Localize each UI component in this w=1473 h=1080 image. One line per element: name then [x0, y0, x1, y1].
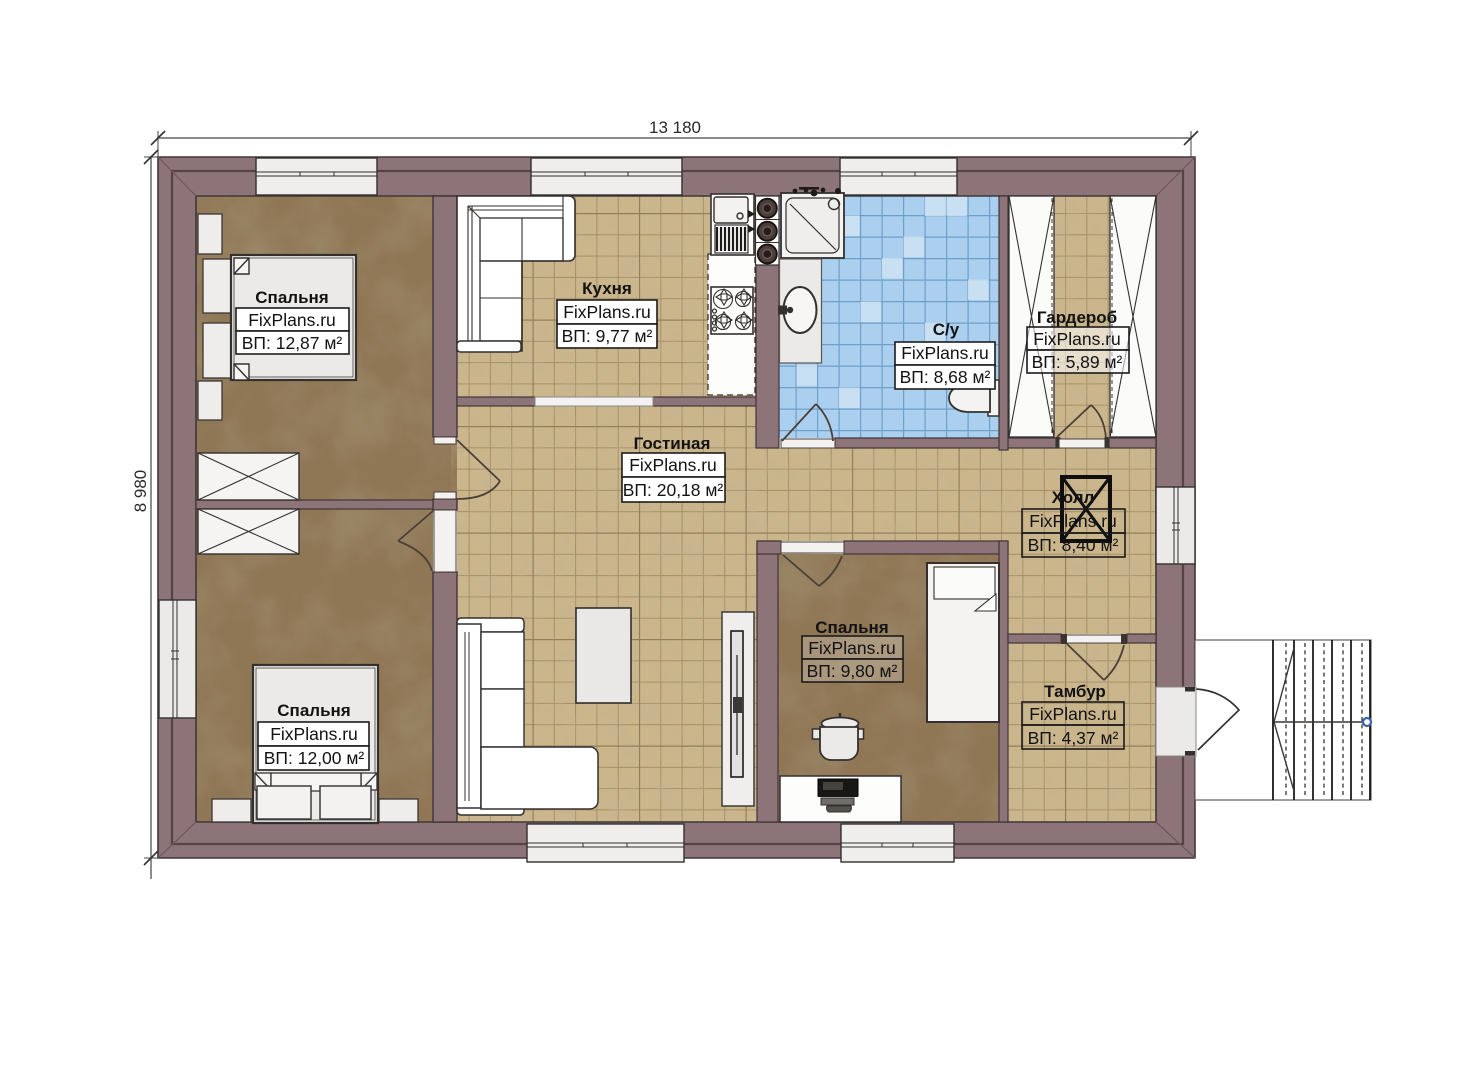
svg-text:FixPlans.ru: FixPlans.ru — [901, 343, 989, 363]
svg-text:Гардероб: Гардероб — [1037, 308, 1117, 327]
svg-text:FixPlans.ru: FixPlans.ru — [270, 724, 358, 744]
svg-text:13 180: 13 180 — [649, 118, 701, 137]
svg-text:Гостиная: Гостиная — [634, 434, 711, 453]
svg-text:ВП: 12,00 м²: ВП: 12,00 м² — [264, 748, 365, 768]
svg-text:ВП: 9,77 м²: ВП: 9,77 м² — [562, 326, 653, 346]
svg-text:Холл: Холл — [1052, 488, 1095, 507]
svg-text:FixPlans.ru: FixPlans.ru — [629, 455, 717, 475]
svg-text:FixPlans.ru: FixPlans.ru — [1033, 329, 1121, 349]
svg-text:Кухня: Кухня — [582, 279, 632, 298]
svg-text:Спальня: Спальня — [255, 288, 328, 307]
svg-text:ВП: 12,87 м²: ВП: 12,87 м² — [242, 333, 343, 353]
svg-text:ВП: 4,37 м²: ВП: 4,37 м² — [1028, 728, 1119, 748]
svg-text:FixPlans.ru: FixPlans.ru — [563, 302, 651, 322]
svg-text:ВП: 8,68 м²: ВП: 8,68 м² — [900, 367, 991, 387]
svg-text:ВП: 20,18 м²: ВП: 20,18 м² — [623, 480, 724, 500]
svg-text:Тамбур: Тамбур — [1044, 682, 1106, 701]
svg-text:С/у: С/у — [933, 320, 960, 339]
svg-text:Спальня: Спальня — [277, 701, 350, 720]
svg-text:FixPlans.ru: FixPlans.ru — [1029, 511, 1117, 531]
svg-text:8 980: 8 980 — [131, 470, 150, 513]
svg-text:Спальня: Спальня — [815, 618, 888, 637]
svg-text:ВП: 9,80 м²: ВП: 9,80 м² — [807, 661, 898, 681]
svg-text:ВП: 8,40 м²: ВП: 8,40 м² — [1028, 535, 1119, 555]
svg-text:FixPlans.ru: FixPlans.ru — [1029, 704, 1117, 724]
svg-text:FixPlans.ru: FixPlans.ru — [248, 310, 336, 330]
svg-text:ВП: 5,89 м²: ВП: 5,89 м² — [1032, 352, 1123, 372]
svg-text:FixPlans.ru: FixPlans.ru — [808, 638, 896, 658]
